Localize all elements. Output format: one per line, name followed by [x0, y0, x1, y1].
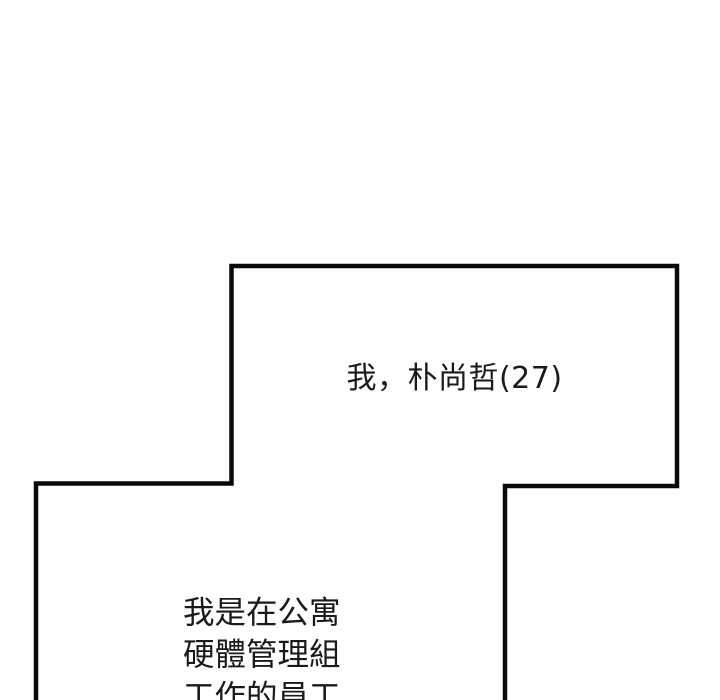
speech-panel-shape	[0, 0, 720, 700]
narration-line: 工作的員工	[183, 676, 341, 700]
comic-page: 我，朴尚哲(27) 我是在公寓 硬體管理組 工作的員工	[0, 0, 720, 700]
narration-text-top: 我，朴尚哲(27)	[232, 362, 677, 396]
narration-line: 我是在公寓	[183, 592, 341, 634]
panel-border-outline	[36, 266, 677, 700]
narration-text-bottom: 我是在公寓 硬體管理組 工作的員工	[183, 592, 341, 700]
narration-line: 硬體管理組	[183, 634, 341, 676]
